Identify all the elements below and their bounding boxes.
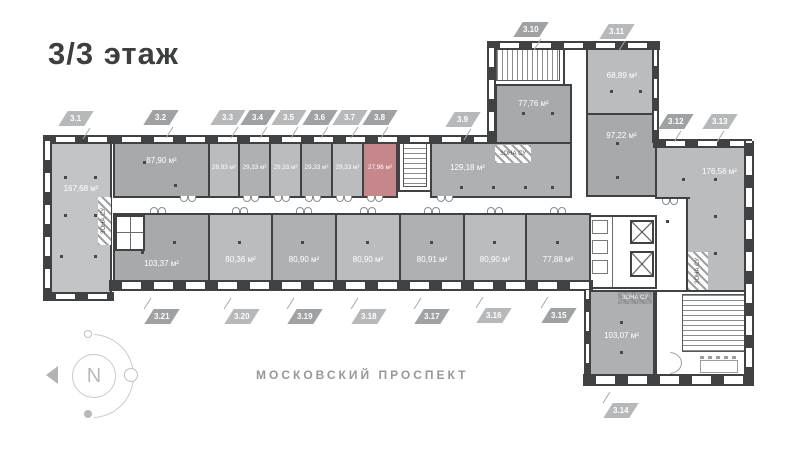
compass-dot xyxy=(84,410,92,418)
street-label: МОСКОВСКИЙ ПРОСПЕКТ xyxy=(256,368,469,382)
page-title: 3/3 этаж xyxy=(48,36,179,72)
door xyxy=(305,196,321,202)
room-3-10[interactable]: 77,76 м² xyxy=(495,84,572,144)
wc-stall xyxy=(592,260,608,274)
wall-bottom-left xyxy=(43,292,114,301)
room-3-11[interactable]: 68,89 м² xyxy=(586,48,658,115)
door xyxy=(360,207,376,213)
badge-3-12: 3.12 xyxy=(658,114,693,129)
wall-east-north-block xyxy=(652,50,659,143)
badge-3-21: 3.21 xyxy=(144,309,179,324)
floor-plan-canvas: 3/3 этаж 167,68 м² 87,90 м² 28,93 м² 29,… xyxy=(0,0,800,450)
door xyxy=(662,199,678,205)
zone-su-banner: ЗОНА СУ xyxy=(618,292,652,304)
badge-3-20: 3.20 xyxy=(224,309,259,324)
compass-north: N xyxy=(72,354,116,398)
badge-3-2: 3.2 xyxy=(143,110,178,125)
badge-3-10: 3.10 xyxy=(513,22,548,37)
wall-west-south-block xyxy=(584,290,591,376)
door xyxy=(367,196,383,202)
door xyxy=(424,207,440,213)
wall-bottom-wing xyxy=(109,280,593,291)
zone-su-hatch: ЗОНА СУ xyxy=(495,145,531,163)
room-3-13[interactable]: 176,56 м² xyxy=(655,143,750,199)
door xyxy=(150,207,166,213)
room-3-4[interactable]: 29,33 м² xyxy=(238,137,271,198)
west-arrow-icon xyxy=(46,366,58,384)
door xyxy=(274,196,290,202)
badge-3-8: 3.8 xyxy=(362,110,397,125)
room-3-16[interactable]: 80,90 м² xyxy=(463,213,527,290)
badge-3-19: 3.19 xyxy=(287,309,322,324)
stairs-south xyxy=(682,294,746,352)
door xyxy=(336,196,352,202)
door xyxy=(550,207,566,213)
door xyxy=(232,207,248,213)
room-3-20[interactable]: 80,36 м² xyxy=(208,213,273,290)
badge-3-1: 3.1 xyxy=(58,111,93,126)
room-3-15[interactable]: 77,88 м² xyxy=(525,213,591,290)
room-3-17[interactable]: 80,91 м² xyxy=(399,213,465,290)
stairs-west xyxy=(403,142,427,187)
wall-bottom-east-wing xyxy=(583,374,754,386)
wc-stall xyxy=(592,240,608,254)
wall-west xyxy=(43,135,52,301)
room-3-2[interactable]: 87,90 м² xyxy=(113,137,210,198)
door xyxy=(437,196,453,202)
badge-3-17: 3.17 xyxy=(414,309,449,324)
compass-dot xyxy=(84,330,92,338)
zone-su-hatch: ЗОНА СУ xyxy=(98,197,111,245)
zone-su-hatch: ЗОНА СУ xyxy=(688,252,708,290)
room-3-13-joint xyxy=(690,195,746,201)
wall-west-north-block xyxy=(487,41,496,144)
wall-top-north-block xyxy=(487,41,660,50)
wall-top-left xyxy=(43,135,114,144)
badge-3-14: 3.14 xyxy=(603,403,638,418)
badge-3-18: 3.18 xyxy=(351,309,386,324)
stairs-north xyxy=(496,49,560,81)
room-3-8-selected[interactable]: 27,96 м² xyxy=(362,137,398,198)
door xyxy=(487,207,503,213)
room-3-5[interactable]: 29,33 м² xyxy=(269,137,302,198)
door xyxy=(296,207,312,213)
wall-top-east-wing xyxy=(653,139,752,148)
door xyxy=(243,196,259,202)
room-3-18[interactable]: 80,90 м² xyxy=(335,213,401,290)
wc-stall xyxy=(592,220,608,234)
conference-table xyxy=(700,360,738,373)
room-3-3[interactable]: 28,93 м² xyxy=(208,137,240,198)
elevator-icon xyxy=(630,251,654,277)
compass: N xyxy=(40,328,150,424)
badge-3-16: 3.16 xyxy=(476,308,511,323)
elevator-icon xyxy=(630,220,654,244)
door xyxy=(180,196,196,202)
room-3-19[interactable]: 80,90 м² xyxy=(271,213,337,290)
room-3-6[interactable]: 29,33 м² xyxy=(300,137,333,198)
badge-3-13: 3.13 xyxy=(702,114,737,129)
badge-3-4: 3.4 xyxy=(240,110,275,125)
chairs-row xyxy=(700,356,738,359)
compass-dot xyxy=(124,368,138,382)
badge-3-5: 3.5 xyxy=(271,110,306,125)
wall-east xyxy=(744,141,754,380)
room-3-7[interactable]: 29,33 м² xyxy=(331,137,364,198)
core-wall xyxy=(612,217,613,287)
wc-divider xyxy=(130,217,131,249)
badge-3-9: 3.9 xyxy=(445,112,480,127)
badge-3-15: 3.15 xyxy=(541,308,576,323)
room-3-12[interactable]: 97,22 м² xyxy=(586,113,657,197)
badge-3-11: 3.11 xyxy=(599,24,634,39)
